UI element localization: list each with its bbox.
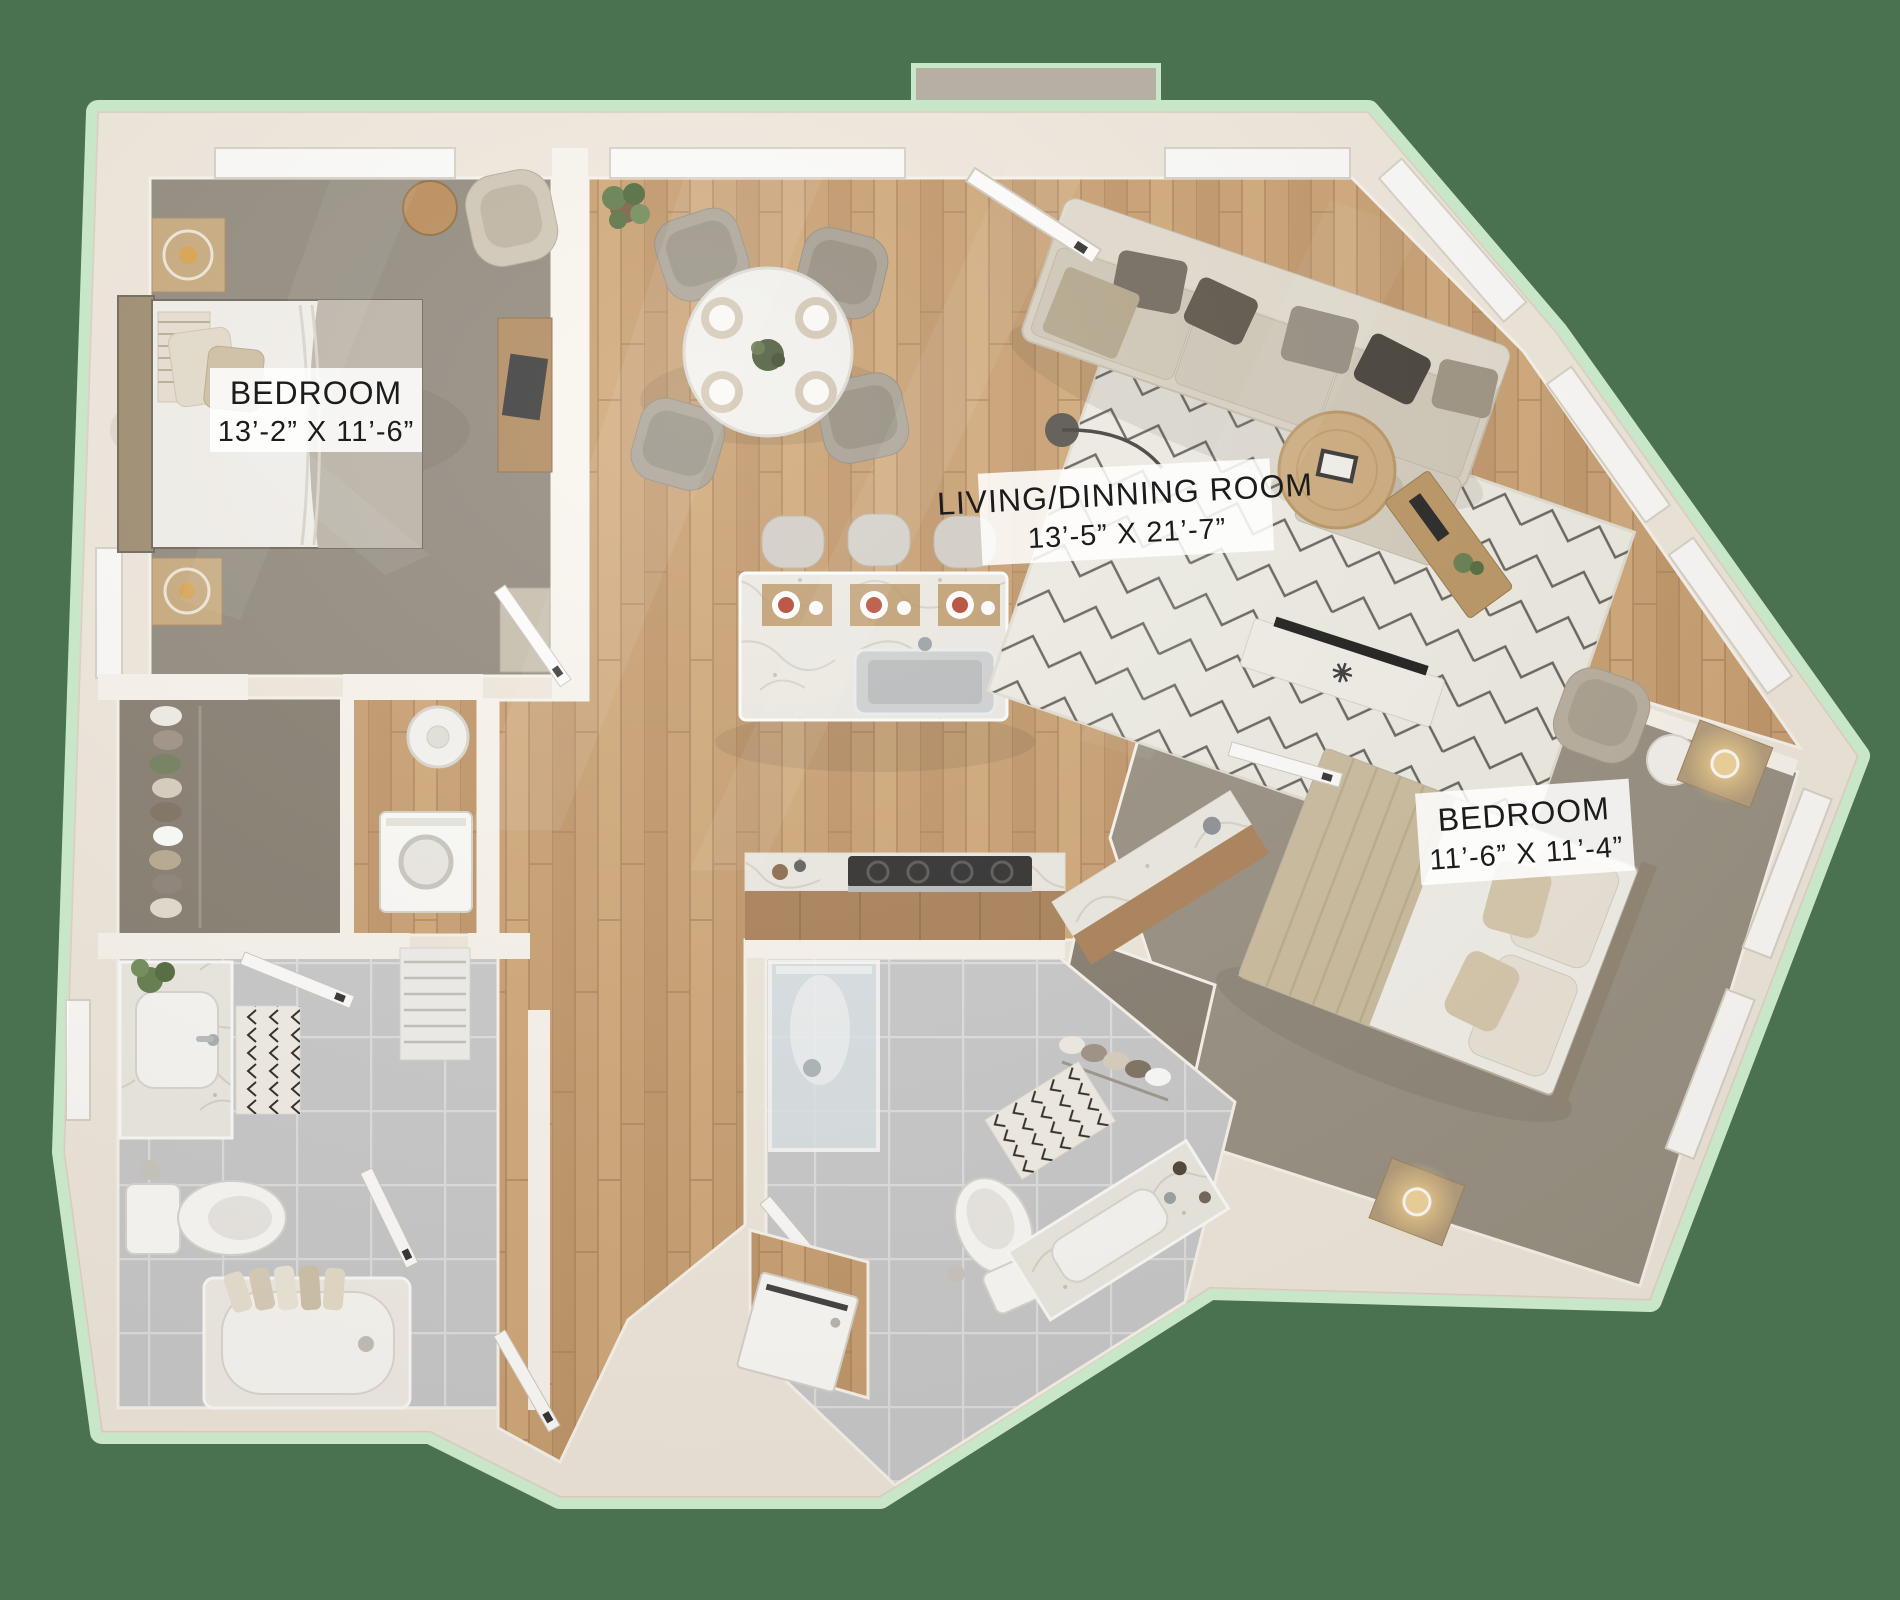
- bedroom-1-dimensions: 13’-2” X 11’-6”: [218, 416, 415, 448]
- bedroom-1-name: BEDROOM: [230, 375, 402, 411]
- living-dining-label: LIVING/DINNING ROOM 13’-5” X 21’-7”: [936, 456, 1317, 568]
- bedroom-2-label: BEDROOM 11’-6” X 11’-4”: [1415, 779, 1635, 886]
- bedroom-1-label: BEDROOM 13’-2” X 11’-6”: [210, 368, 422, 452]
- floor-plan-image: BEDROOM 13’-2” X 11’-6” LIVING/DINNING R…: [0, 0, 1900, 1600]
